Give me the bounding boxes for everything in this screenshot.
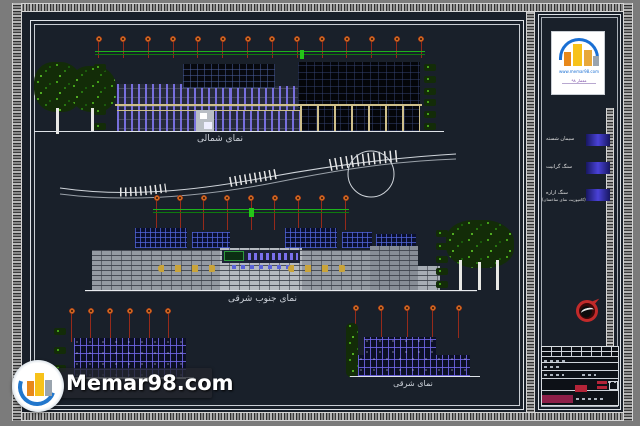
- entrance-sign: [204, 122, 212, 129]
- street-light-icon: [455, 305, 462, 338]
- entrance-sign: [200, 113, 207, 119]
- cad-sheet-screenshot: { "sheet": {"outer_bg": "#7b7b7b", "pape…: [0, 0, 640, 426]
- logo-building-icon: [564, 52, 571, 66]
- shrub-icon: [94, 123, 106, 130]
- shrub-icon: [424, 123, 436, 130]
- se-elevation-title: نمای جنوب شرقی: [215, 294, 310, 304]
- logo-caption: معمار ۹۸: [562, 78, 596, 84]
- se-lamps-right: [288, 265, 346, 272]
- logo-building-icon: [35, 373, 44, 396]
- shrub-icon: [94, 108, 106, 115]
- memar98-logo-box: www.memar98.com معمار ۹۸: [551, 31, 605, 95]
- green-marker: [300, 50, 304, 59]
- sheet-border-right: [623, 3, 633, 421]
- green-marker: [249, 208, 254, 217]
- logo-building-icon: [584, 50, 592, 66]
- shrub-icon: [424, 88, 436, 95]
- colonnade-posts: [300, 106, 420, 131]
- street-light-icon: [378, 305, 385, 338]
- se-wall-tower: [370, 246, 418, 290]
- tree: [70, 66, 116, 132]
- logo-building-icon: [45, 380, 52, 396]
- legend-label: سیمان شسته: [546, 136, 584, 142]
- shrub-icon: [54, 328, 66, 335]
- shrub-icon: [424, 64, 436, 71]
- legend-swatch: [586, 134, 610, 146]
- east-building-lower: [358, 355, 470, 376]
- se-roof-panel: [135, 228, 187, 248]
- logo-building-icon: [27, 381, 34, 396]
- watermark-logo-circle: [12, 360, 64, 412]
- shrub-column: [94, 64, 106, 130]
- north-building-upper-block: [183, 64, 275, 88]
- street-light-icon: [68, 308, 75, 342]
- street-light-icon: [404, 305, 411, 338]
- watermark-bar: Memar98.com: [52, 368, 212, 398]
- north-ground-line: [34, 131, 444, 132]
- se-sign-text: [248, 253, 298, 260]
- se-roof-panel: [192, 232, 230, 248]
- table-crimson-cell: [542, 395, 573, 403]
- logo-building-icon: [593, 56, 599, 66]
- shrub-icon: [94, 79, 106, 86]
- sheet-border-divider: [526, 12, 535, 412]
- titleblock-table: [541, 346, 619, 406]
- legend-sublabel: (کامپوزیت نمای ساختمان): [542, 197, 588, 203]
- east-elevation-title: نمای شرقی: [378, 379, 448, 388]
- legend-swatch: [586, 189, 610, 201]
- legend-label: سنگ ازاره: [546, 190, 584, 196]
- street-light-icon: [165, 308, 172, 342]
- east-ground-line: [350, 376, 480, 377]
- shrub-column: [424, 64, 436, 130]
- legend-label: سنگ گرانیت: [546, 164, 584, 170]
- bl-streetlights-row: [68, 308, 172, 342]
- shrub-column: [54, 328, 66, 372]
- table-red-cell: [575, 385, 587, 392]
- sheet-border-bottom: [12, 412, 633, 421]
- sheet-border-left: [12, 3, 22, 421]
- shrub-icon: [54, 347, 66, 354]
- shrub-icon: [94, 94, 106, 101]
- sheet-border-top: [12, 3, 633, 12]
- shrub-icon: [424, 111, 436, 118]
- tree-group: [446, 220, 514, 290]
- north-building-mid-windows: [230, 86, 298, 110]
- legend-swatch: [586, 162, 610, 174]
- table-red-cell: [597, 381, 607, 384]
- logo-site-text: www.memar98.com: [555, 69, 603, 74]
- se-roof-panel: [285, 228, 337, 248]
- shrub-icon: [424, 99, 436, 106]
- table-red-cell: [597, 386, 607, 389]
- se-sign-green: [224, 251, 244, 261]
- street-light-icon: [87, 308, 94, 342]
- shrub-icon: [424, 76, 436, 83]
- se-sign-subtext: [232, 265, 292, 269]
- se-roof-panel: [342, 232, 372, 248]
- north-building-right-block: [298, 62, 420, 108]
- street-light-icon: [146, 308, 153, 342]
- street-light-icon: [429, 305, 436, 338]
- logo-building-icon: [573, 44, 582, 66]
- street-light-icon: [126, 308, 133, 342]
- east-building-upper: [364, 337, 436, 356]
- shrub-icon: [94, 64, 106, 71]
- east-tree-strip: [346, 323, 358, 377]
- table-cell: [609, 381, 618, 390]
- street-light-icon: [107, 308, 114, 342]
- east-streetlights-row: [352, 305, 462, 338]
- north-elevation-title: نمای شمالی: [180, 134, 260, 144]
- se-ground-line: [85, 290, 477, 292]
- north-powerline: [95, 51, 425, 55]
- se-lamps-left: [158, 265, 216, 272]
- watermark-text: Memar98.com: [52, 368, 212, 398]
